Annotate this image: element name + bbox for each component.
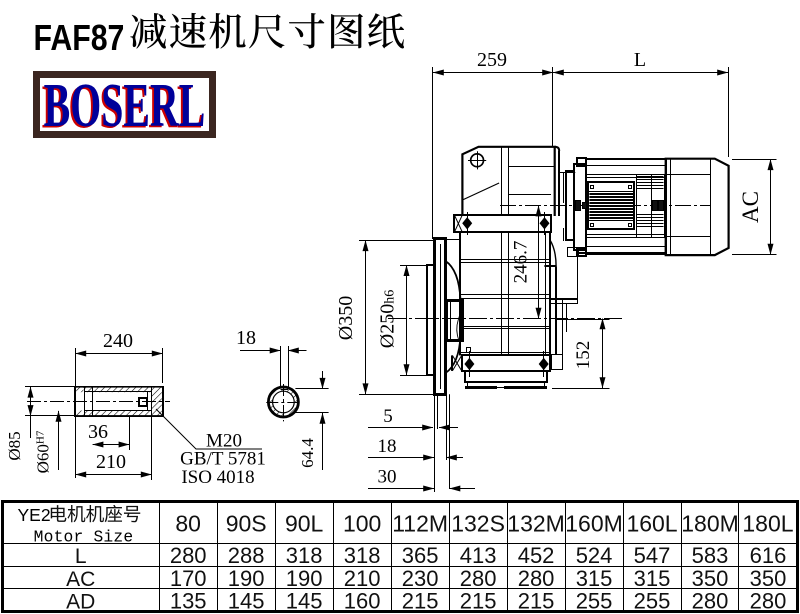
svg-text:280: 280 [518,566,555,591]
svg-text:ISO 4018: ISO 4018 [181,467,254,488]
svg-text:616: 616 [750,543,787,568]
svg-text:BOSERL: BOSERL [44,73,206,141]
svg-text:255: 255 [576,589,613,614]
svg-text:259: 259 [477,49,507,71]
svg-text:Ø85: Ø85 [5,431,24,460]
svg-text:452: 452 [518,543,555,568]
svg-text:132S: 132S [451,511,505,537]
svg-text:215: 215 [518,589,555,614]
svg-text:145: 145 [228,589,265,614]
svg-text:160M: 160M [565,511,623,537]
svg-text:L: L [634,49,646,71]
svg-text:365: 365 [402,543,439,568]
svg-text:210: 210 [344,566,381,591]
svg-text:AC: AC [66,568,95,591]
svg-text:AD: AD [66,591,95,614]
svg-text:350: 350 [692,566,729,591]
svg-text:36: 36 [88,421,108,443]
svg-text:583: 583 [692,543,729,568]
svg-text:152: 152 [573,341,594,370]
svg-text:190: 190 [228,566,265,591]
svg-text:240: 240 [103,330,133,352]
svg-text:160: 160 [344,589,381,614]
svg-text:215: 215 [460,589,497,614]
svg-text:30: 30 [378,467,397,488]
svg-text:170: 170 [170,566,207,591]
svg-text:AC: AC [738,191,763,223]
svg-text:L: L [75,545,87,568]
svg-text:180M: 180M [681,511,739,537]
svg-text:132M: 132M [507,511,565,537]
svg-text:315: 315 [576,566,613,591]
svg-text:90L: 90L [285,511,324,537]
svg-text:190: 190 [286,566,323,591]
svg-text:145: 145 [286,589,323,614]
svg-text:318: 318 [286,543,323,568]
svg-text:280: 280 [750,589,787,614]
svg-text:160L: 160L [626,511,677,537]
svg-text:210: 210 [96,451,126,473]
svg-text:318: 318 [344,543,381,568]
svg-text:280: 280 [460,566,497,591]
svg-text:90S: 90S [226,511,267,537]
svg-text:135: 135 [170,589,207,614]
svg-text:18: 18 [236,327,256,349]
svg-text:FAF87: FAF87 [34,18,125,58]
svg-text:Motor Size: Motor Size [34,528,134,547]
svg-text:80: 80 [175,511,201,537]
svg-text:5: 5 [383,406,393,427]
svg-text:Ø350: Ø350 [335,296,357,340]
svg-text:350: 350 [750,566,787,591]
svg-text:100: 100 [343,511,381,537]
svg-text:YE2: YE2 [18,505,51,525]
svg-text:280: 280 [170,543,207,568]
svg-text:280: 280 [692,589,729,614]
svg-text:215: 215 [402,589,439,614]
svg-text:230: 230 [402,566,439,591]
svg-text:255: 255 [634,589,671,614]
svg-text:112M: 112M [392,511,448,537]
svg-text:288: 288 [228,543,265,568]
svg-text:547: 547 [634,543,671,568]
svg-text:413: 413 [460,543,497,568]
svg-text:180L: 180L [742,511,793,537]
svg-text:18: 18 [378,436,397,457]
svg-text:64.4: 64.4 [298,438,317,468]
svg-text:315: 315 [634,566,671,591]
svg-text:524: 524 [576,543,613,568]
